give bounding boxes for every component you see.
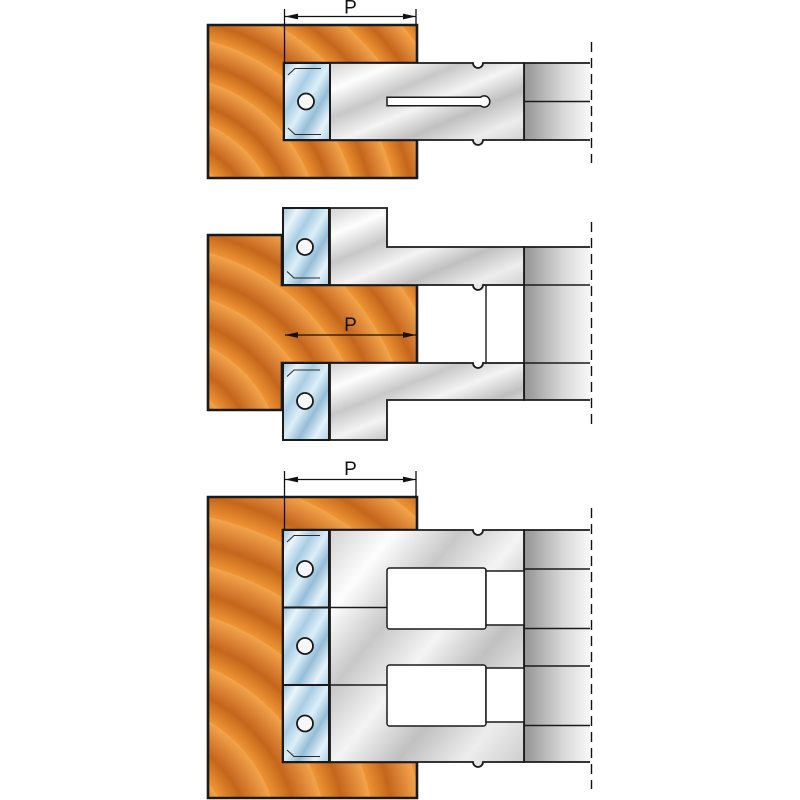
dimension-p: P (285, 0, 416, 19)
dimension-label: P (344, 459, 357, 480)
dimension-arrow-left-icon (285, 14, 298, 20)
screw-hole (297, 716, 313, 732)
cutter-body-stack (330, 530, 524, 767)
screw-hole (297, 561, 313, 577)
relief-slot-step (486, 668, 524, 722)
technical-diagram-canvas: P P (0, 0, 800, 800)
diagram-groove-cut: P (208, 0, 592, 178)
dimension-label: P (344, 315, 357, 336)
screw-hole (297, 239, 313, 255)
relief-slot (387, 665, 486, 726)
relief-slot (387, 568, 486, 629)
cutter-body-lower (330, 363, 524, 440)
illustration-root: P P (0, 0, 800, 800)
relief-slot-step (486, 571, 524, 625)
dimension-p: P (285, 459, 416, 482)
screw-hole (298, 94, 314, 110)
diagram-tongue-cut: P (208, 208, 592, 440)
dimension-arrow-left-icon (285, 477, 298, 483)
screw-hole (297, 638, 313, 654)
spindle-hub (524, 530, 590, 762)
spindle-hub (524, 247, 590, 400)
diagram-rabbet-cut: P (208, 459, 592, 798)
dimension-label: P (344, 0, 357, 19)
cutter-body-upper (330, 208, 524, 290)
screw-hole (297, 393, 313, 409)
dimension-arrow-right-icon (403, 477, 416, 483)
relief-slot (387, 96, 490, 107)
dimension-arrow-right-icon (403, 14, 416, 20)
